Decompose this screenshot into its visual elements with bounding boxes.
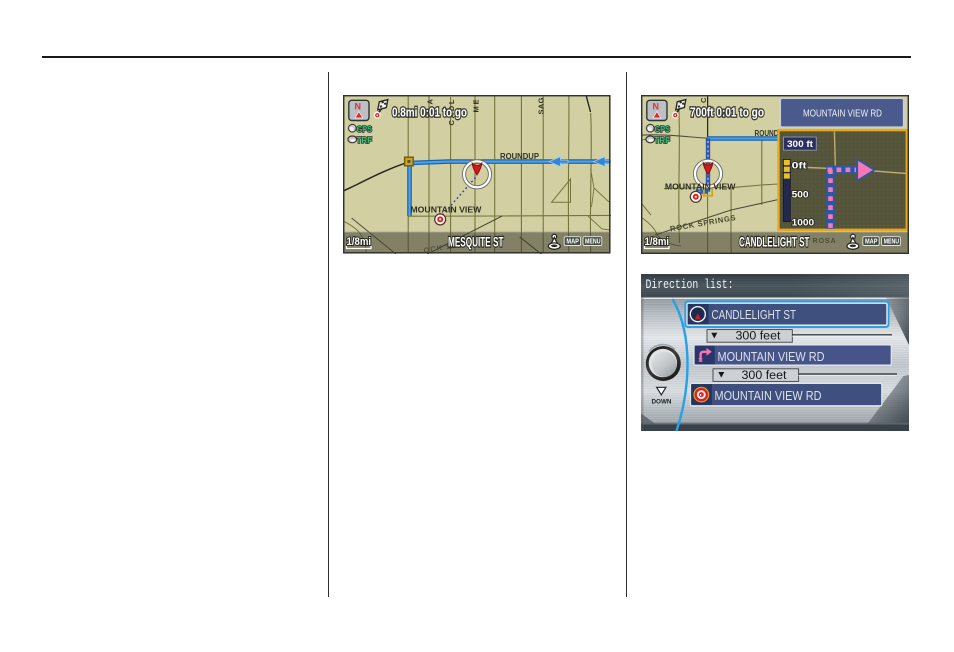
svg-text:GPS: GPS xyxy=(655,125,671,134)
svg-text:ROSA: ROSA xyxy=(813,236,837,245)
svg-text:MENU: MENU xyxy=(585,237,601,246)
svg-text:MOUNTAIN VIEW: MOUNTAIN VIEW xyxy=(665,183,736,192)
svg-text:0ft: 0ft xyxy=(792,161,808,172)
svg-text:SAG: SAG xyxy=(537,97,546,114)
svg-text:MOUNTAIN VIEW: MOUNTAIN VIEW xyxy=(410,206,481,215)
svg-text:700ft 0:01 to go: 700ft 0:01 to go xyxy=(690,105,764,119)
svg-text:300 feet: 300 feet xyxy=(736,330,782,342)
svg-text:MAP: MAP xyxy=(865,237,878,246)
svg-text:MAP: MAP xyxy=(566,237,579,246)
svg-text:MESQUITE ST: MESQUITE ST xyxy=(448,235,504,250)
svg-text:1/8mi: 1/8mi xyxy=(347,236,372,248)
svg-text:MOUNTAIN VIEW RD: MOUNTAIN VIEW RD xyxy=(715,387,822,402)
svg-text:MENU: MENU xyxy=(884,237,900,246)
svg-text:TRF: TRF xyxy=(357,136,373,145)
svg-text:1000: 1000 xyxy=(792,217,815,228)
svg-text:300 ft: 300 ft xyxy=(787,139,814,150)
svg-text:MOUNTAIN VIEW RD: MOUNTAIN VIEW RD xyxy=(803,109,882,120)
svg-text:Direction list:: Direction list: xyxy=(646,277,734,292)
svg-text:TRF: TRF xyxy=(655,136,671,145)
svg-text:300 feet: 300 feet xyxy=(742,369,788,381)
svg-text:GPS: GPS xyxy=(357,125,373,134)
svg-text:CANDLELIGHT ST: CANDLELIGHT ST xyxy=(712,307,797,322)
svg-text:500: 500 xyxy=(792,190,809,201)
svg-text:C: C xyxy=(699,97,708,103)
svg-text:N: N xyxy=(653,102,660,112)
svg-text:N: N xyxy=(355,102,362,112)
svg-text:1/8mi: 1/8mi xyxy=(645,236,670,248)
svg-text:0.8mi 0:01 to go: 0.8mi 0:01 to go xyxy=(392,105,467,119)
svg-text:MOUNTAIN VIEW RD: MOUNTAIN VIEW RD xyxy=(718,348,825,363)
svg-text:DOWN: DOWN xyxy=(652,398,672,405)
svg-text:CANDLELIGHT ST: CANDLELIGHT ST xyxy=(739,235,810,250)
